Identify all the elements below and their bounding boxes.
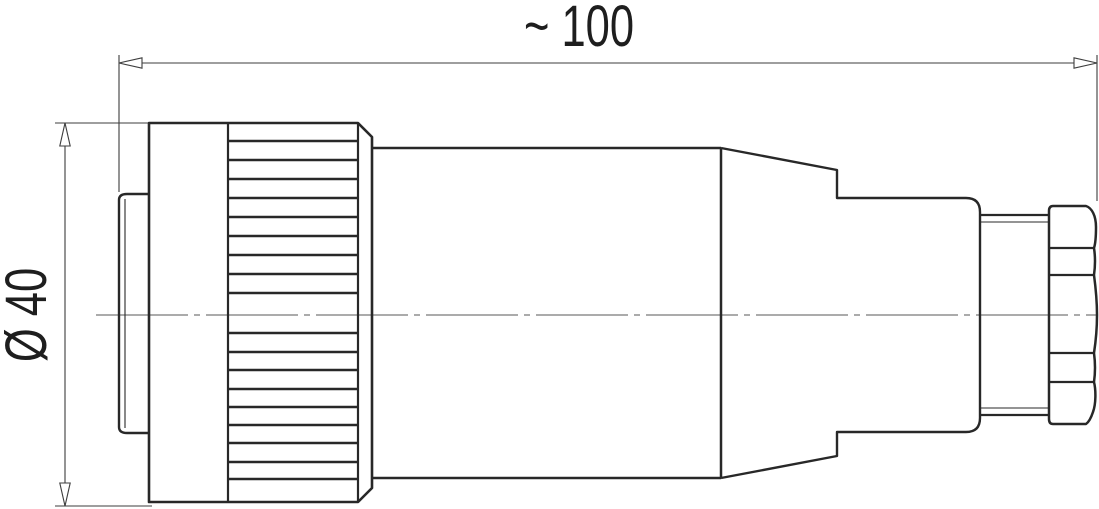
technical-drawing-canvas: ~ 100 Ø 40 (0, 0, 1099, 509)
diameter-dimension-label: Ø 40 (0, 268, 58, 362)
rear-body (721, 148, 980, 478)
coupling-ring (149, 123, 372, 502)
knurl-ribs (228, 141, 358, 479)
length-arrow-left (119, 58, 142, 68)
length-dimension-label-group: ~ 100 (524, 0, 634, 58)
connector-outline (119, 123, 1097, 502)
connector-technical-drawing: ~ 100 Ø 40 (0, 0, 1099, 509)
length-arrow-right (1074, 58, 1097, 68)
diameter-arrow-up (60, 123, 70, 146)
length-dimension-label: ~ 100 (524, 0, 634, 58)
diameter-arrow-down (60, 483, 70, 506)
main-body (372, 148, 721, 478)
front-sleeve (119, 194, 150, 433)
diameter-dimension-label-group: Ø 40 (0, 268, 58, 362)
